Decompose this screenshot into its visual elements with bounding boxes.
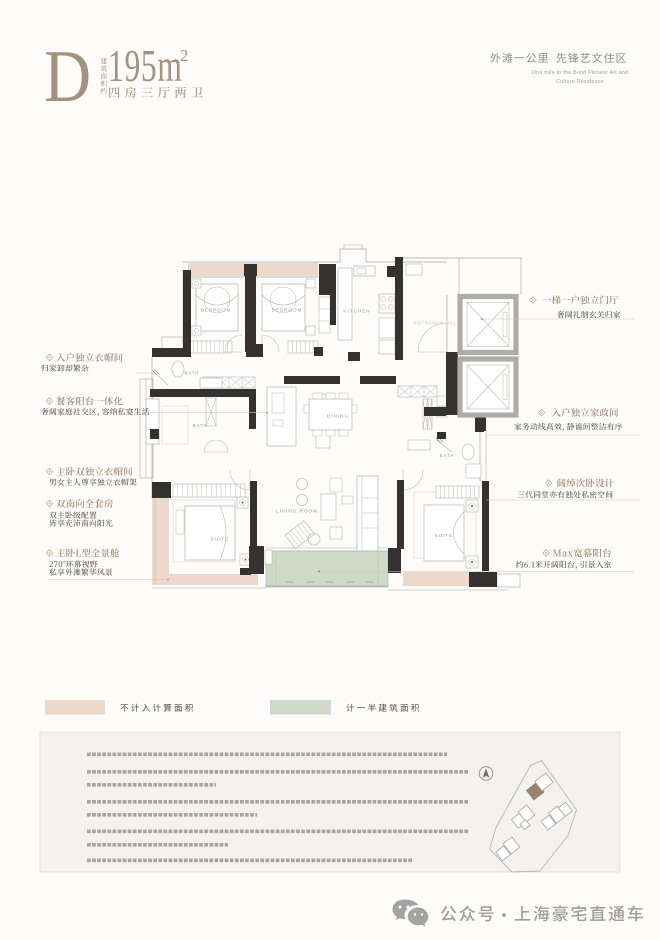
svg-text:One mile to the Bund Pioneer A: One mile to the Bund Pioneer Art and <box>532 70 629 76</box>
svg-text:SUITE: SUITE <box>435 533 454 538</box>
svg-text:BATH: BATH <box>440 453 455 458</box>
svg-text:LIVING ROOM: LIVING ROOM <box>276 509 318 514</box>
svg-text:SUITE: SUITE <box>211 537 230 542</box>
svg-text:D: D <box>44 36 91 118</box>
svg-text:BATH: BATH <box>185 371 200 376</box>
svg-text:DINING: DINING <box>327 414 349 419</box>
svg-text:195m: 195m <box>108 42 183 92</box>
svg-text:BEDROOM: BEDROOM <box>201 308 232 313</box>
svg-text:2: 2 <box>180 46 189 65</box>
svg-text:Culture Residence: Culture Residence <box>556 79 604 85</box>
svg-text:KITCHEN: KITCHEN <box>343 309 370 314</box>
svg-text:BATH: BATH <box>193 423 208 428</box>
svg-text:ENTRANCE HALL: ENTRANCE HALL <box>414 321 461 326</box>
svg-text:BEDROOM: BEDROOM <box>272 308 303 313</box>
